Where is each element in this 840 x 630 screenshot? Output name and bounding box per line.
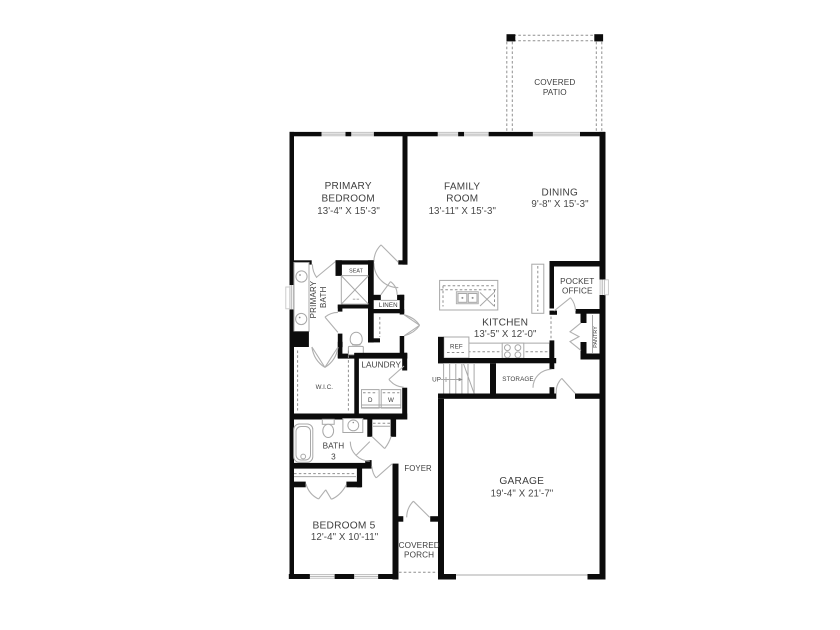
svg-text:13'-5" X 12'-0": 13'-5" X 12'-0" [474, 329, 537, 340]
svg-text:12'-4" X 10'-11": 12'-4" X 10'-11" [311, 532, 379, 543]
svg-text:STORAGE: STORAGE [502, 376, 533, 383]
svg-text:BATH: BATH [323, 441, 345, 450]
svg-text:13'-11" X 15'-3": 13'-11" X 15'-3" [429, 206, 497, 217]
svg-text:D: D [368, 397, 373, 404]
svg-text:19'-4" X 21'-7": 19'-4" X 21'-7" [491, 489, 554, 500]
svg-text:FAMILY: FAMILY [444, 182, 480, 193]
svg-text:W.I.C.: W.I.C. [316, 384, 334, 391]
svg-text:COVERED: COVERED [399, 541, 440, 550]
svg-text:LAUNDRY: LAUNDRY [361, 360, 401, 369]
svg-text:13'-4" X 15'-3": 13'-4" X 15'-3" [317, 206, 380, 217]
svg-text:FOYER: FOYER [404, 464, 432, 473]
svg-text:W: W [388, 397, 394, 404]
svg-text:POCKET: POCKET [560, 277, 594, 286]
svg-text:KITCHEN: KITCHEN [482, 318, 528, 329]
svg-text:OFFICE: OFFICE [562, 286, 593, 295]
svg-text:PANTRY: PANTRY [593, 326, 599, 348]
svg-text:GARAGE: GARAGE [499, 476, 544, 487]
svg-text:PRIMARY: PRIMARY [309, 280, 318, 318]
svg-text:LINEN: LINEN [379, 302, 398, 309]
svg-text:BEDROOM 5: BEDROOM 5 [313, 521, 376, 532]
svg-text:PRIMARY: PRIMARY [325, 181, 372, 192]
svg-text:9'-8" X 15'-3": 9'-8" X 15'-3" [531, 199, 589, 210]
svg-text:BATH: BATH [319, 286, 328, 308]
svg-text:REF: REF [450, 343, 463, 350]
svg-text:UP: UP [432, 377, 441, 384]
svg-text:BEDROOM: BEDROOM [321, 193, 374, 204]
svg-text:COVERED: COVERED [534, 78, 575, 87]
svg-text:3: 3 [331, 452, 336, 461]
svg-text:DINING: DINING [542, 187, 579, 198]
svg-text:SEAT: SEAT [349, 269, 364, 275]
svg-text:ROOM: ROOM [446, 194, 478, 205]
svg-text:PORCH: PORCH [404, 551, 434, 560]
svg-text:PATIO: PATIO [543, 88, 567, 97]
